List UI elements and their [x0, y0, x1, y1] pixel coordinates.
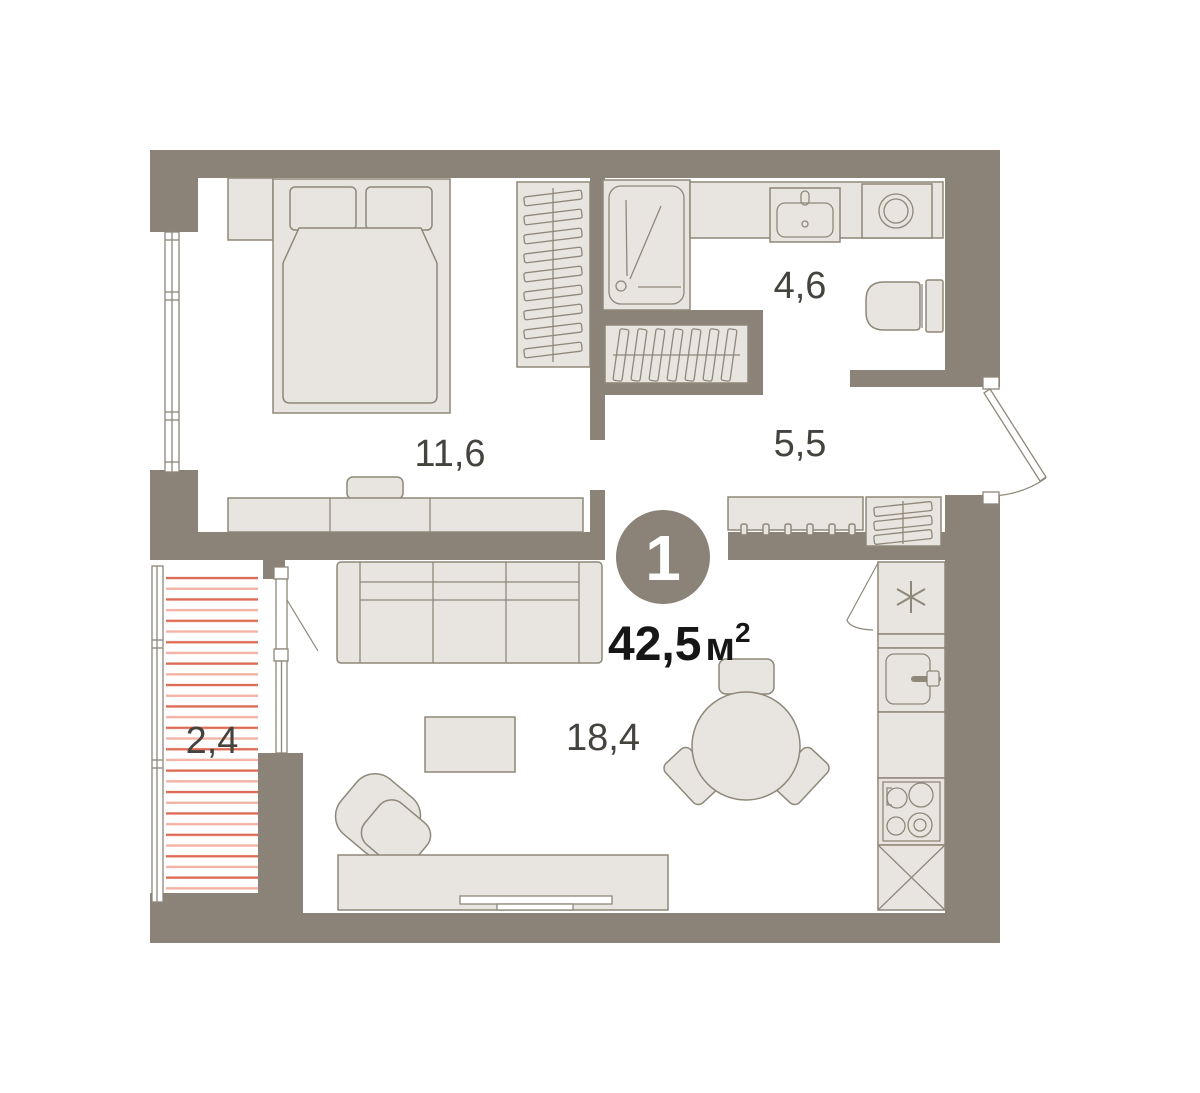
bathroom: [603, 180, 943, 332]
unit-area: 42,5м2: [608, 617, 751, 671]
blanket: [283, 228, 437, 403]
cooktop: [878, 778, 945, 845]
wall-below-closet: [605, 383, 763, 395]
kitchen-shelf: [878, 634, 945, 648]
kitchen-counter: [878, 712, 945, 778]
unit-area-sup: 2: [735, 617, 751, 648]
balcony-door-leaf: [276, 579, 287, 649]
unit-badge: 1: [616, 510, 710, 604]
wall-above-closet: [605, 310, 763, 325]
coffee-table: [425, 717, 515, 772]
entrance-door: [983, 377, 1046, 504]
balcony-door: [274, 567, 318, 661]
end-cabinet: [878, 845, 945, 910]
wall-right-lower: [945, 495, 1000, 943]
dresser: [228, 498, 583, 532]
wall-right-upper: [945, 178, 1000, 387]
coat-rack: [728, 497, 863, 535]
wall-left-upper: [150, 178, 198, 232]
bedroom-window: [165, 232, 179, 472]
wall-bath-bottom: [850, 370, 945, 387]
room-area-bathroom: 4,6: [774, 265, 827, 307]
wall-bottom: [150, 913, 1000, 943]
tv: [460, 896, 612, 904]
dining-table: [692, 692, 800, 800]
unit-area-value: 42,5: [608, 618, 701, 671]
wall-balcony-lower: [258, 753, 303, 913]
hall-closet: [605, 325, 748, 383]
washing-machine: [862, 184, 932, 238]
wall-top: [150, 150, 1000, 178]
dining-set: [661, 659, 832, 807]
floor-plan: 11,6 4,6 5,5 18,4 2,4 1 42,5м2: [0, 0, 1200, 1093]
wall-bedroom-living: [150, 532, 605, 560]
wardrobe: [517, 182, 590, 367]
balcony-window: [276, 661, 287, 753]
bedroom: [228, 178, 590, 532]
nightstand: [228, 178, 273, 240]
room-area-bedroom: 11,6: [414, 433, 485, 475]
fridge: [878, 562, 945, 634]
floor-plan-canvas: 11,6 4,6 5,5 18,4 2,4 1 42,5м2: [0, 0, 1200, 1093]
unit-number: 1: [645, 522, 681, 594]
hall-wardrobe: [866, 497, 941, 546]
sofa: [337, 562, 602, 663]
washbasin: [770, 188, 840, 242]
entrance-door-leaf: [984, 389, 1046, 481]
stool: [347, 477, 403, 499]
shower: [603, 180, 690, 310]
room-area-balcony: 2,4: [186, 720, 239, 762]
toilet: [866, 280, 943, 332]
room-area-hallway: 5,5: [774, 423, 827, 465]
kitchen: [847, 562, 945, 910]
kitchen-door-swing: [847, 563, 878, 630]
pillow: [290, 187, 356, 230]
tv-stand: [338, 855, 668, 910]
pillow: [366, 187, 432, 230]
kitchen-sink: [878, 648, 945, 712]
balcony-door-swing: [287, 600, 318, 651]
unit-area-unit: м: [705, 625, 735, 669]
room-area-living: 18,4: [566, 717, 640, 759]
